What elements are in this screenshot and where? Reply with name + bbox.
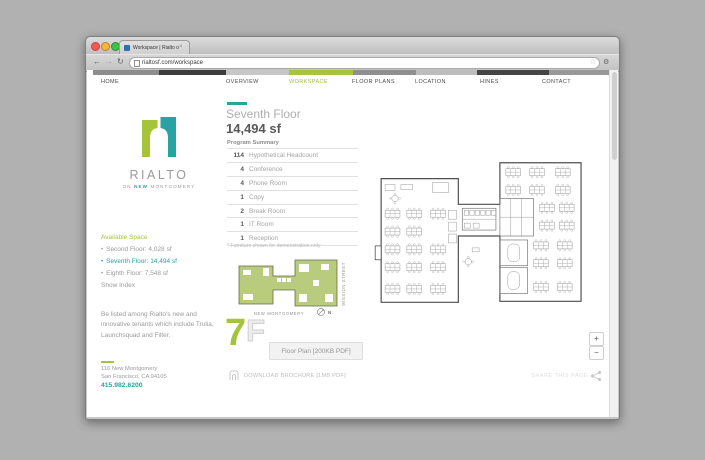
program-qty: 1 (227, 194, 244, 201)
compass-n-label: N (328, 310, 331, 315)
program-qty: 1 (227, 235, 244, 242)
bullet-icon: • (101, 259, 103, 265)
zoom-out-button[interactable]: − (589, 346, 604, 360)
street-label-mission: MISSION STREET (341, 262, 346, 306)
nav-segment (93, 70, 159, 75)
nav-segment (416, 70, 477, 75)
nav-segment (477, 70, 549, 75)
floor-badge: 7 F (225, 317, 265, 349)
window-minimize-button[interactable] (101, 42, 110, 51)
nav-segment (226, 70, 289, 75)
brochure-arch-icon (229, 370, 239, 380)
floor-link-label: Seventh Floor: 14,494 sf (106, 258, 177, 265)
floor-plan-pdf-button[interactable]: Floor Plan [200KB PDF] (269, 342, 363, 360)
rialto-arch-logo-icon (142, 117, 176, 157)
program-row: 4Conference (227, 162, 358, 176)
nav-item-home[interactable]: HOME (101, 79, 119, 85)
webpage: HOME OVERVIEW WORKSPACE FLOOR PLANS LOCA… (87, 70, 618, 417)
nav-color-bar (93, 70, 609, 75)
tab-title: Workspace | Rialto on New… (133, 45, 179, 51)
program-qty: 4 (227, 166, 244, 173)
floor-badge-letter: F (246, 317, 265, 346)
bullet-icon: • (101, 247, 103, 253)
program-row: 4Phone Room (227, 176, 358, 190)
forward-icon[interactable]: → (105, 57, 113, 67)
tab-close-icon[interactable]: × (179, 44, 183, 50)
desktop-background: Workspace | Rialto on New… × ← → ↻ rialt… (0, 0, 705, 460)
program-row: 1Copy (227, 190, 358, 204)
program-label: Conference (244, 166, 283, 173)
address-line1: 116 New Montgomery (101, 366, 157, 372)
nav-segment (549, 70, 609, 75)
program-qty: 1 (227, 221, 244, 228)
download-brochure-link[interactable]: DOWNLOAD BROCHURE [1MB PDF] (244, 373, 346, 379)
floor-title: Seventh Floor (226, 107, 301, 121)
page-scrollbar[interactable] (609, 70, 618, 417)
phone-number: 415.982.6200 (101, 382, 143, 389)
address-divider (101, 361, 114, 363)
tab-favicon-icon (124, 45, 130, 51)
program-label: Phone Room (244, 180, 287, 187)
zoom-in-button[interactable]: + (589, 332, 604, 346)
nav-item-hines[interactable]: HINES (480, 79, 499, 85)
browser-menu-icon[interactable]: ⚙ (603, 58, 609, 66)
floor-link-eighth[interactable]: •Eighth Floor: 7,548 sf (101, 270, 168, 277)
floor-size: 14,494 sf (226, 121, 281, 136)
furniture-footnote: * Furniture shown for demonstration only (227, 243, 320, 249)
show-index-link[interactable]: Show Index (101, 282, 135, 289)
floor-plan-viewer[interactable] (373, 141, 607, 333)
nav-item-location[interactable]: LOCATION (415, 79, 446, 85)
floor-link-label: Second Floor: 4,028 sf (106, 246, 171, 253)
url-text: rialtosf.com/workspace (142, 60, 203, 66)
tenant-blurb: Be listed among Rialto's new and innovat… (101, 310, 222, 341)
program-row: 2Break Room (227, 204, 358, 218)
program-label: Reception (244, 235, 278, 242)
window-close-button[interactable] (91, 42, 100, 51)
program-row: 1IT Room (227, 217, 358, 231)
url-bar[interactable]: rialtosf.com/workspace ☆ (129, 57, 600, 69)
reload-icon[interactable]: ↻ (117, 57, 124, 67)
logo-tagline-on: ON (123, 184, 132, 189)
program-row: 114Hypothetical Headcount (227, 148, 358, 162)
floor-link-seventh[interactable]: •Seventh Floor: 14,494 sf (101, 258, 177, 265)
program-label: Break Room (244, 208, 285, 215)
logo-brand-text: RIALTO (97, 168, 221, 182)
share-icon[interactable] (590, 370, 602, 382)
available-space-heading: Available Space (101, 234, 148, 241)
floor-badge-number: 7 (225, 317, 245, 349)
program-label: Copy (244, 194, 264, 201)
logo-tagline-montgomery: MONTGOMERY (151, 184, 196, 189)
floor-title-rule (227, 102, 247, 105)
floor-link-second[interactable]: •Second Floor: 4,028 sf (101, 246, 172, 253)
scrollbar-thumb[interactable] (612, 72, 617, 160)
logo-tagline: ON NEW MONTGOMERY (97, 184, 221, 189)
keyplan-map: NEW MONTGOMERY N MISSION STREET (233, 254, 355, 320)
program-summary-heading: Program Summary (227, 140, 279, 146)
back-icon[interactable]: ← (93, 57, 101, 67)
rialto-logo[interactable]: RIALTO ON NEW MONTGOMERY (97, 117, 221, 189)
nav-segment (159, 70, 226, 75)
nav-item-contact[interactable]: CONTACT (542, 79, 571, 85)
logo-tagline-new: NEW (134, 184, 148, 189)
floor-link-label: Eighth Floor: 7,548 sf (106, 270, 168, 277)
tab-strip: Workspace | Rialto on New… × (86, 37, 619, 54)
program-qty: 4 (227, 180, 244, 187)
program-qty: 114 (227, 152, 244, 159)
page-icon (134, 60, 140, 67)
program-qty: 2 (227, 208, 244, 215)
nav-segment (353, 70, 416, 75)
bookmark-star-icon[interactable]: ☆ (590, 58, 596, 66)
share-this-page-link[interactable]: SHARE THIS PAGE (531, 373, 588, 379)
program-summary-table: 114Hypothetical Headcount 4Conference 4P… (227, 148, 358, 246)
nav-segment (289, 70, 353, 75)
browser-tab[interactable]: Workspace | Rialto on New… × (119, 40, 190, 55)
nav-item-floor-plans[interactable]: FLOOR PLANS (352, 79, 395, 85)
nav-item-overview[interactable]: OVERVIEW (226, 79, 259, 85)
bullet-icon: • (101, 271, 103, 277)
nav-item-workspace[interactable]: WORKSPACE (289, 79, 328, 85)
program-label: Hypothetical Headcount (244, 152, 318, 159)
address-line2: San Francisco, CA 94105 (101, 374, 167, 380)
program-label: IT Room (244, 221, 274, 228)
browser-window: Workspace | Rialto on New… × ← → ↻ rialt… (85, 36, 620, 420)
